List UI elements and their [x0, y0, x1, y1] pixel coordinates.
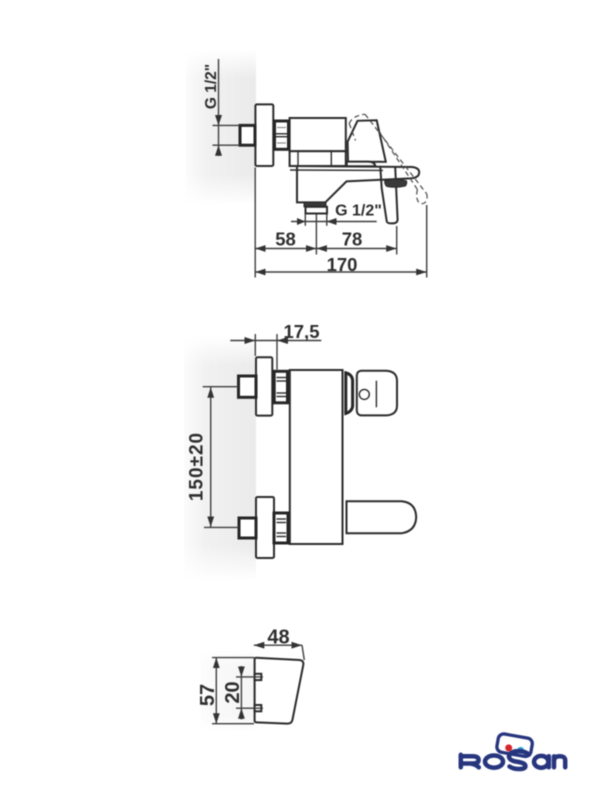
svg-text:20: 20	[222, 681, 244, 703]
svg-text:58: 58	[275, 229, 296, 250]
svg-text:57: 57	[197, 684, 219, 706]
svg-text:G 1/2": G 1/2"	[203, 64, 220, 109]
svg-text:150±20: 150±20	[187, 432, 208, 501]
svg-text:G 1/2": G 1/2"	[335, 203, 382, 220]
svg-text:170: 170	[327, 254, 358, 275]
svg-text:48: 48	[267, 627, 289, 649]
svg-text:17,5: 17,5	[283, 321, 319, 342]
svg-text:78: 78	[342, 229, 363, 250]
